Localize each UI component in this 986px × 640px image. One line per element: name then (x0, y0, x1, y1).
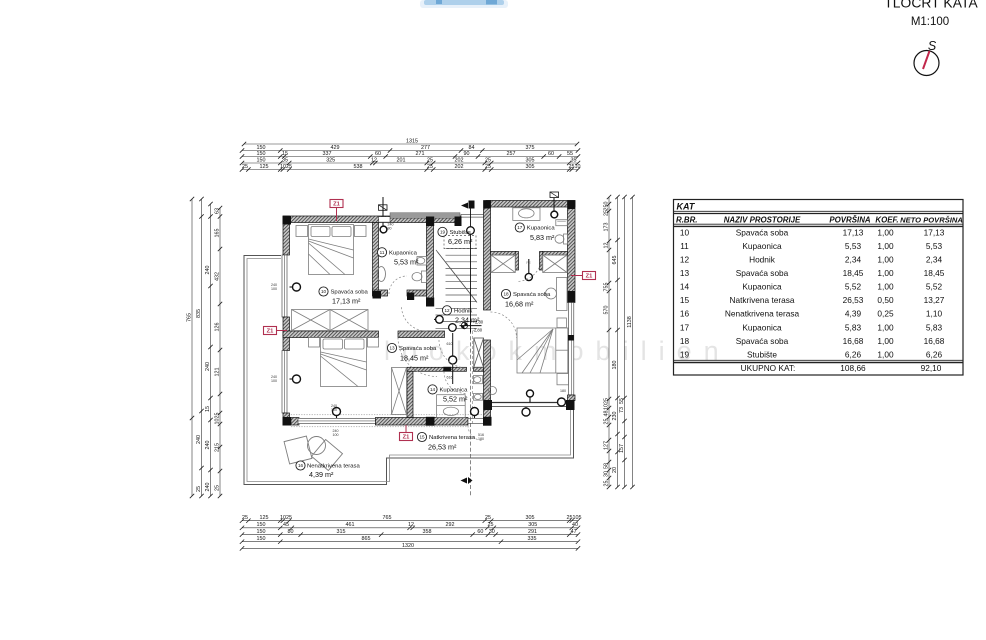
svg-text:616: 616 (447, 376, 453, 380)
svg-text:25: 25 (485, 157, 491, 163)
svg-text:18,45: 18,45 (843, 268, 864, 278)
svg-text:14: 14 (680, 282, 690, 292)
svg-text:18,45: 18,45 (924, 268, 945, 278)
svg-text:Kupaonica: Kupaonica (389, 251, 418, 257)
svg-text:5,53 m²: 5,53 m² (394, 258, 419, 267)
svg-text:1,00: 1,00 (877, 227, 894, 237)
svg-text:865: 865 (362, 536, 371, 542)
svg-text:25: 25 (427, 164, 433, 170)
svg-text:645: 645 (612, 256, 618, 265)
svg-text:5,52 m²: 5,52 m² (443, 395, 468, 404)
svg-text:TLOCRT KATA: TLOCRT KATA (884, 0, 978, 11)
svg-text:Kupaonica: Kupaonica (742, 322, 782, 332)
svg-text:1138: 1138 (627, 316, 633, 328)
svg-text:429: 429 (331, 145, 340, 151)
svg-text:18,45 m²: 18,45 m² (400, 354, 429, 363)
svg-text:11: 11 (380, 250, 385, 255)
svg-text:19: 19 (440, 230, 446, 235)
svg-text:18: 18 (503, 292, 509, 297)
svg-text:13,27: 13,27 (924, 295, 945, 305)
svg-text:14: 14 (430, 387, 436, 392)
svg-text:25: 25 (214, 485, 220, 491)
svg-text:19: 19 (680, 349, 690, 359)
svg-text:230: 230 (612, 412, 618, 421)
svg-text:1,00: 1,00 (877, 241, 894, 251)
svg-text:12: 12 (603, 243, 609, 249)
svg-text:1320: 1320 (402, 543, 414, 549)
svg-text:150: 150 (257, 522, 266, 528)
svg-text:202: 202 (455, 157, 464, 163)
svg-text:60: 60 (375, 151, 381, 157)
svg-text:25: 25 (488, 522, 494, 528)
svg-text:2510: 2510 (569, 164, 581, 170)
svg-text:240: 240 (205, 362, 211, 371)
svg-text:1,00: 1,00 (877, 322, 894, 332)
svg-text:358: 358 (423, 529, 432, 535)
svg-text:Spavaća soba: Spavaća soba (399, 346, 437, 352)
svg-text:5,83 m²: 5,83 m² (530, 233, 555, 242)
svg-text:215: 215 (214, 443, 220, 452)
svg-text:25105: 25105 (567, 515, 582, 521)
svg-text:Spavaća soba: Spavaća soba (513, 292, 551, 298)
svg-text:240: 240 (205, 441, 211, 450)
svg-text:125: 125 (260, 164, 269, 170)
svg-text:100: 100 (271, 379, 277, 383)
svg-text:UKUPNO KAT:: UKUPNO KAT: (741, 363, 796, 373)
svg-text:Kupaonica: Kupaonica (742, 241, 782, 251)
svg-text:127: 127 (603, 441, 609, 450)
svg-text:335: 335 (528, 536, 537, 542)
svg-text:80: 80 (388, 226, 392, 230)
svg-text:1,00: 1,00 (877, 349, 894, 359)
svg-text:6,26: 6,26 (845, 349, 862, 359)
svg-text:150: 150 (257, 151, 266, 157)
svg-text:12: 12 (444, 308, 450, 313)
svg-text:Kupaonica: Kupaonica (527, 226, 556, 232)
svg-text:201: 201 (397, 157, 406, 163)
svg-text:5,53: 5,53 (926, 241, 943, 251)
svg-text:292: 292 (446, 522, 455, 528)
svg-text:325: 325 (326, 157, 335, 163)
svg-text:150: 150 (257, 529, 266, 535)
svg-text:25: 25 (242, 164, 248, 170)
svg-text:KOEF.: KOEF. (875, 215, 898, 224)
svg-text:16,68: 16,68 (843, 336, 864, 346)
svg-text:Hodnik: Hodnik (749, 254, 776, 264)
svg-text:150: 150 (257, 536, 266, 542)
svg-text:765: 765 (383, 515, 392, 521)
svg-text:17,13 m²: 17,13 m² (332, 297, 361, 306)
svg-text:80: 80 (288, 529, 294, 535)
svg-text:5,52: 5,52 (926, 282, 943, 292)
svg-text:1025: 1025 (214, 413, 220, 425)
svg-text:4,39 m²: 4,39 m² (309, 470, 334, 479)
svg-text:63: 63 (214, 208, 220, 214)
svg-text:240: 240 (205, 266, 211, 275)
svg-text:48: 48 (603, 411, 609, 417)
svg-text:15: 15 (282, 151, 288, 157)
svg-text:305: 305 (528, 522, 537, 528)
svg-text:Nenatkrivena terasa: Nenatkrivena terasa (307, 464, 360, 470)
svg-text:173: 173 (603, 223, 609, 232)
svg-text:15: 15 (205, 406, 211, 412)
svg-text:4,39: 4,39 (845, 309, 862, 319)
svg-text:Z1: Z1 (333, 202, 341, 208)
svg-text:125: 125 (260, 515, 269, 521)
svg-text:1025: 1025 (280, 164, 292, 170)
svg-text:240: 240 (196, 435, 202, 444)
svg-text:108,66: 108,66 (840, 363, 866, 373)
svg-text:1025: 1025 (603, 398, 609, 410)
svg-text:305: 305 (526, 515, 535, 521)
svg-text:0,50: 0,50 (877, 295, 894, 305)
svg-text:157: 157 (619, 444, 625, 453)
svg-text:250: 250 (603, 202, 609, 211)
svg-text:45: 45 (283, 522, 289, 528)
svg-text:KAT: KAT (677, 202, 696, 212)
svg-text:58: 58 (603, 463, 609, 469)
svg-text:12: 12 (371, 157, 377, 163)
svg-text:13: 13 (389, 346, 395, 351)
svg-text:17,13: 17,13 (924, 227, 945, 237)
svg-text:337: 337 (323, 151, 332, 157)
svg-text:1,10: 1,10 (926, 309, 943, 319)
svg-text:Nenatkrivena terasa: Nenatkrivena terasa (725, 309, 800, 319)
svg-text:25: 25 (485, 515, 491, 521)
svg-text:Natkrivena terasa: Natkrivena terasa (729, 295, 794, 305)
svg-text:2,34 m²: 2,34 m² (455, 316, 480, 325)
svg-text:180: 180 (612, 361, 618, 370)
svg-text:40: 40 (572, 522, 578, 528)
svg-text:55: 55 (567, 151, 573, 157)
svg-text:10: 10 (321, 289, 327, 294)
svg-text:765: 765 (186, 313, 192, 322)
svg-text:Spavaća soba: Spavaća soba (736, 336, 789, 346)
svg-text:15: 15 (680, 295, 690, 305)
svg-text:25: 25 (427, 157, 433, 163)
svg-text:25: 25 (485, 164, 491, 170)
svg-text:Stubište: Stubište (747, 349, 777, 359)
svg-text:25: 25 (603, 481, 609, 487)
svg-text:257: 257 (507, 151, 516, 157)
svg-text:R.BR.: R.BR. (676, 215, 697, 224)
svg-text:1,00: 1,00 (877, 268, 894, 278)
svg-text:121: 121 (214, 368, 220, 377)
svg-text:1,00: 1,00 (877, 282, 894, 292)
svg-text:17,13: 17,13 (843, 227, 864, 237)
svg-text:100: 100 (331, 408, 337, 412)
svg-text:0,25: 0,25 (877, 309, 894, 319)
svg-text:20: 20 (612, 467, 618, 473)
svg-text:100: 100 (333, 433, 339, 437)
svg-text:1,00: 1,00 (877, 336, 894, 346)
svg-text:6,26: 6,26 (926, 349, 943, 359)
svg-text:26,53 m²: 26,53 m² (428, 443, 457, 452)
svg-text:35: 35 (282, 157, 288, 163)
svg-text:NAZIV PROSTORIJE: NAZIV PROSTORIJE (724, 215, 801, 224)
svg-text:30: 30 (603, 471, 609, 477)
svg-text:271: 271 (416, 151, 425, 157)
svg-text:13: 13 (680, 268, 690, 278)
svg-text:25: 25 (603, 210, 609, 216)
svg-text:240: 240 (205, 483, 211, 492)
svg-text:10: 10 (680, 227, 690, 237)
svg-text:15: 15 (419, 435, 425, 440)
svg-text:12: 12 (408, 522, 414, 528)
svg-text:Stubište: Stubište (450, 230, 472, 236)
svg-text:610: 610 (447, 342, 453, 346)
svg-text:126: 126 (214, 323, 220, 332)
svg-text:-2,80: -2,80 (473, 328, 483, 333)
svg-text:17: 17 (517, 225, 523, 230)
svg-text:16,68 m²: 16,68 m² (505, 300, 534, 309)
svg-text:M1:100: M1:100 (911, 16, 949, 28)
svg-text:291: 291 (528, 529, 537, 535)
svg-text:835: 835 (196, 309, 202, 318)
svg-text:100: 100 (271, 287, 277, 291)
svg-text:150: 150 (257, 157, 266, 163)
svg-text:1,00: 1,00 (877, 254, 894, 264)
svg-text:60: 60 (548, 151, 554, 157)
svg-text:55: 55 (619, 398, 625, 404)
svg-text:30: 30 (489, 529, 495, 535)
svg-text:60: 60 (477, 529, 483, 535)
svg-text:315: 315 (337, 529, 346, 535)
svg-text:538: 538 (354, 164, 363, 170)
svg-text:25: 25 (603, 419, 609, 425)
svg-text:Natkrivena terasa: Natkrivena terasa (429, 435, 476, 441)
svg-text:5,83: 5,83 (926, 322, 943, 332)
svg-text:47: 47 (571, 529, 577, 535)
svg-text:POVRŠINA: POVRŠINA (829, 215, 871, 224)
svg-text:5,53: 5,53 (845, 241, 862, 251)
svg-text:Kupaonica: Kupaonica (440, 388, 469, 394)
svg-text:16: 16 (298, 463, 304, 468)
svg-text:432: 432 (214, 272, 220, 281)
svg-text:12: 12 (680, 254, 690, 264)
svg-text:92,10: 92,10 (921, 363, 942, 373)
svg-text:755: 755 (603, 283, 609, 292)
svg-text:Hodnik: Hodnik (454, 309, 472, 315)
svg-text:1315: 1315 (406, 138, 418, 144)
svg-text:NETO POVRŠINA: NETO POVRŠINA (900, 215, 963, 224)
svg-text:26,53: 26,53 (843, 295, 864, 305)
svg-text:Z1: Z1 (403, 435, 411, 441)
svg-text:35: 35 (571, 157, 577, 163)
svg-text:73: 73 (619, 407, 625, 413)
svg-text:570: 570 (603, 306, 609, 315)
svg-text:2,34: 2,34 (845, 254, 862, 264)
svg-text:18: 18 (680, 336, 690, 346)
svg-text:11: 11 (680, 241, 689, 251)
svg-text:6,26 m²: 6,26 m² (448, 237, 473, 246)
svg-text:17: 17 (680, 322, 690, 332)
svg-text:165: 165 (214, 229, 220, 238)
svg-text:2,34: 2,34 (926, 254, 943, 264)
svg-text:Kupaonica: Kupaonica (742, 282, 782, 292)
svg-text:25: 25 (242, 515, 248, 521)
svg-text:1025: 1025 (280, 515, 292, 521)
svg-text:305: 305 (526, 157, 535, 163)
svg-text:5,52: 5,52 (845, 282, 862, 292)
svg-text:Spavaća soba: Spavaća soba (736, 227, 789, 237)
svg-text:Z1: Z1 (267, 329, 275, 335)
svg-text:461: 461 (346, 522, 355, 528)
svg-text:90: 90 (464, 151, 470, 157)
svg-text:5,83: 5,83 (845, 322, 862, 332)
svg-text:375: 375 (526, 145, 535, 151)
svg-text:Z1: Z1 (586, 274, 594, 280)
svg-text:16,68: 16,68 (924, 336, 945, 346)
svg-text:202: 202 (455, 164, 464, 170)
svg-text:305: 305 (526, 164, 535, 170)
svg-text:Spavaća soba: Spavaća soba (331, 290, 369, 296)
svg-text:180: 180 (560, 389, 566, 393)
svg-text:Spavaća soba: Spavaća soba (736, 268, 789, 278)
svg-text:16: 16 (680, 309, 690, 319)
svg-text:25: 25 (196, 486, 202, 492)
